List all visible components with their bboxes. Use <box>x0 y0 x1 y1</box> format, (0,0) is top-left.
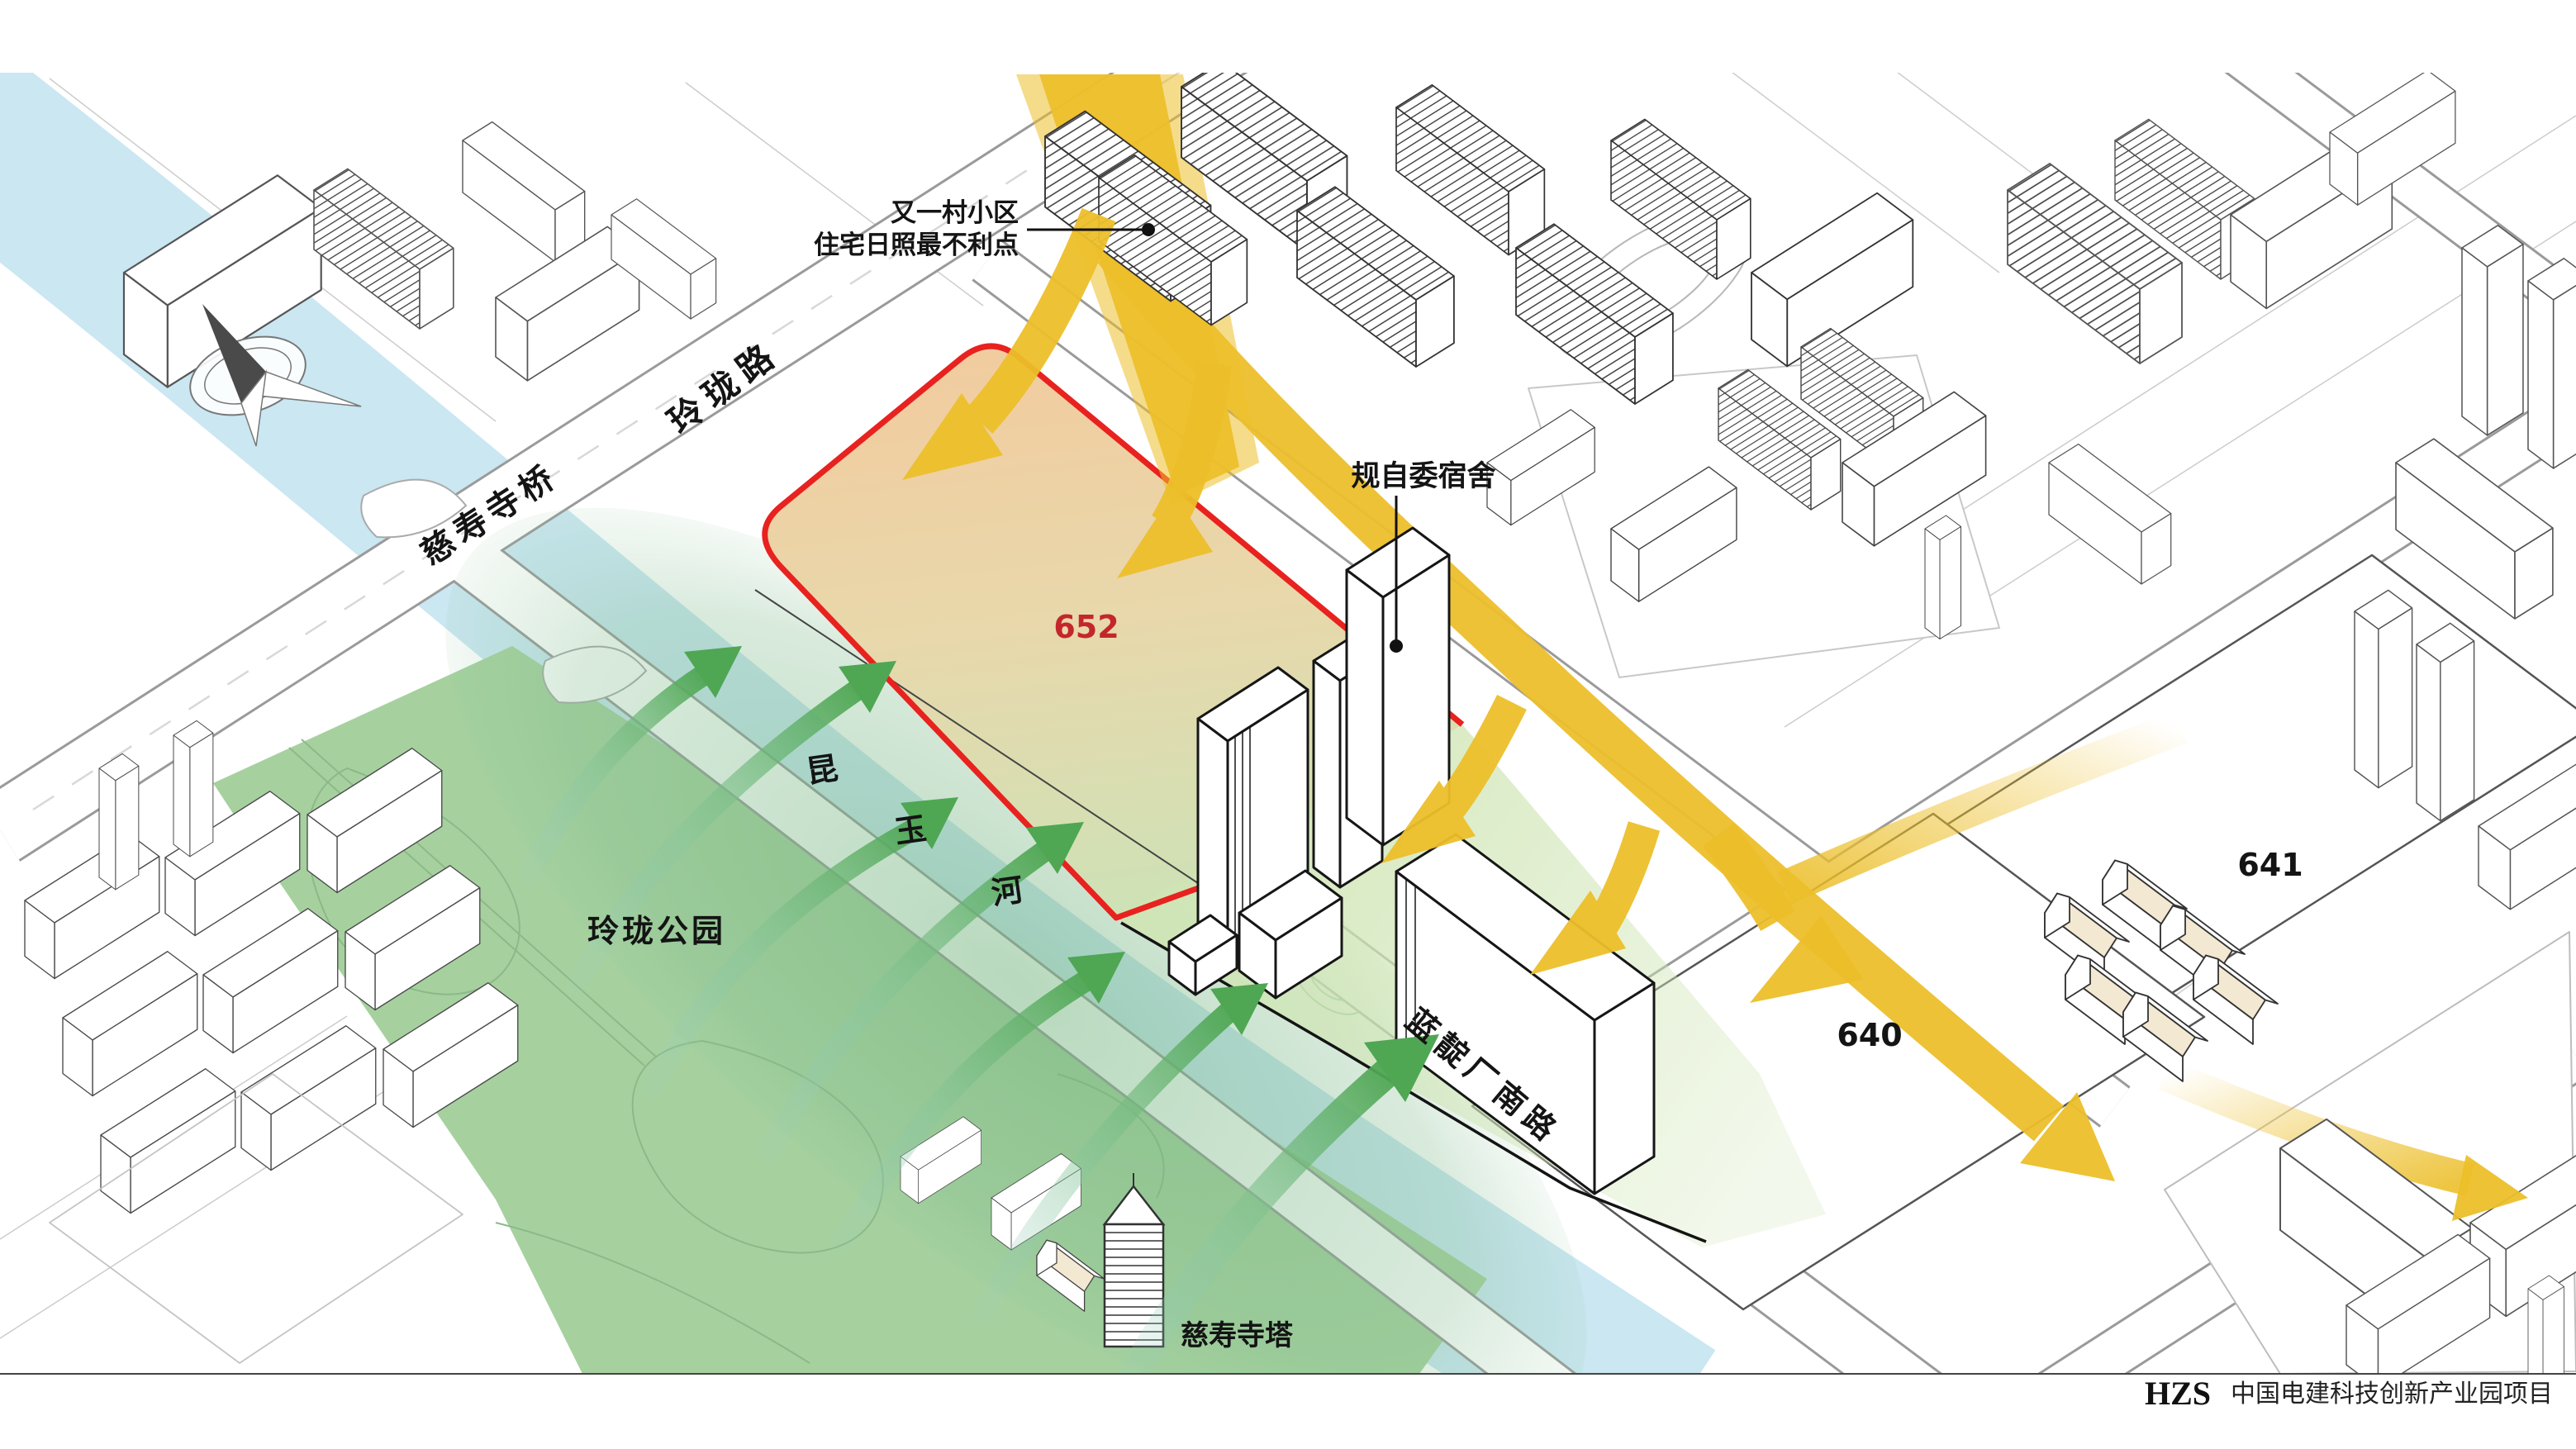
footer-logo: HZS <box>2145 1375 2211 1412</box>
label-yayicun-line2: 住宅日照最不利点 <box>814 230 1019 260</box>
label-river-char-3: 河 <box>989 872 1025 912</box>
label-site-652: 652 <box>1053 609 1119 645</box>
label-parcel-641: 641 <box>2237 847 2303 883</box>
label-guiziwei-dorm: 规自委宿舍 <box>1351 459 1495 493</box>
label-parcel-640: 640 <box>1837 1017 1902 1053</box>
label-cishousi-pagoda: 慈寿寺塔 <box>1181 1319 1294 1352</box>
site-analysis-map: 又一村小区 住宅日照最不利点 玲珑路 慈寿寺桥 规自委宿舍 652 昆 玉 河 … <box>0 0 2576 1449</box>
label-yayicun-line1: 又一村小区 <box>891 198 1019 228</box>
label-linglong-park: 玲珑公园 <box>587 913 726 949</box>
label-river-char-1: 昆 <box>804 750 840 791</box>
footer: HZS 中国电建科技创新产业园项目 <box>0 1374 2576 1412</box>
site-analysis-diagram: 又一村小区 住宅日照最不利点 玲珑路 慈寿寺桥 规自委宿舍 652 昆 玉 河 … <box>0 0 2576 1449</box>
footer-project-title: 中国电建科技创新产业园项目 <box>2231 1380 2553 1409</box>
label-river-char-2: 玉 <box>892 810 929 851</box>
